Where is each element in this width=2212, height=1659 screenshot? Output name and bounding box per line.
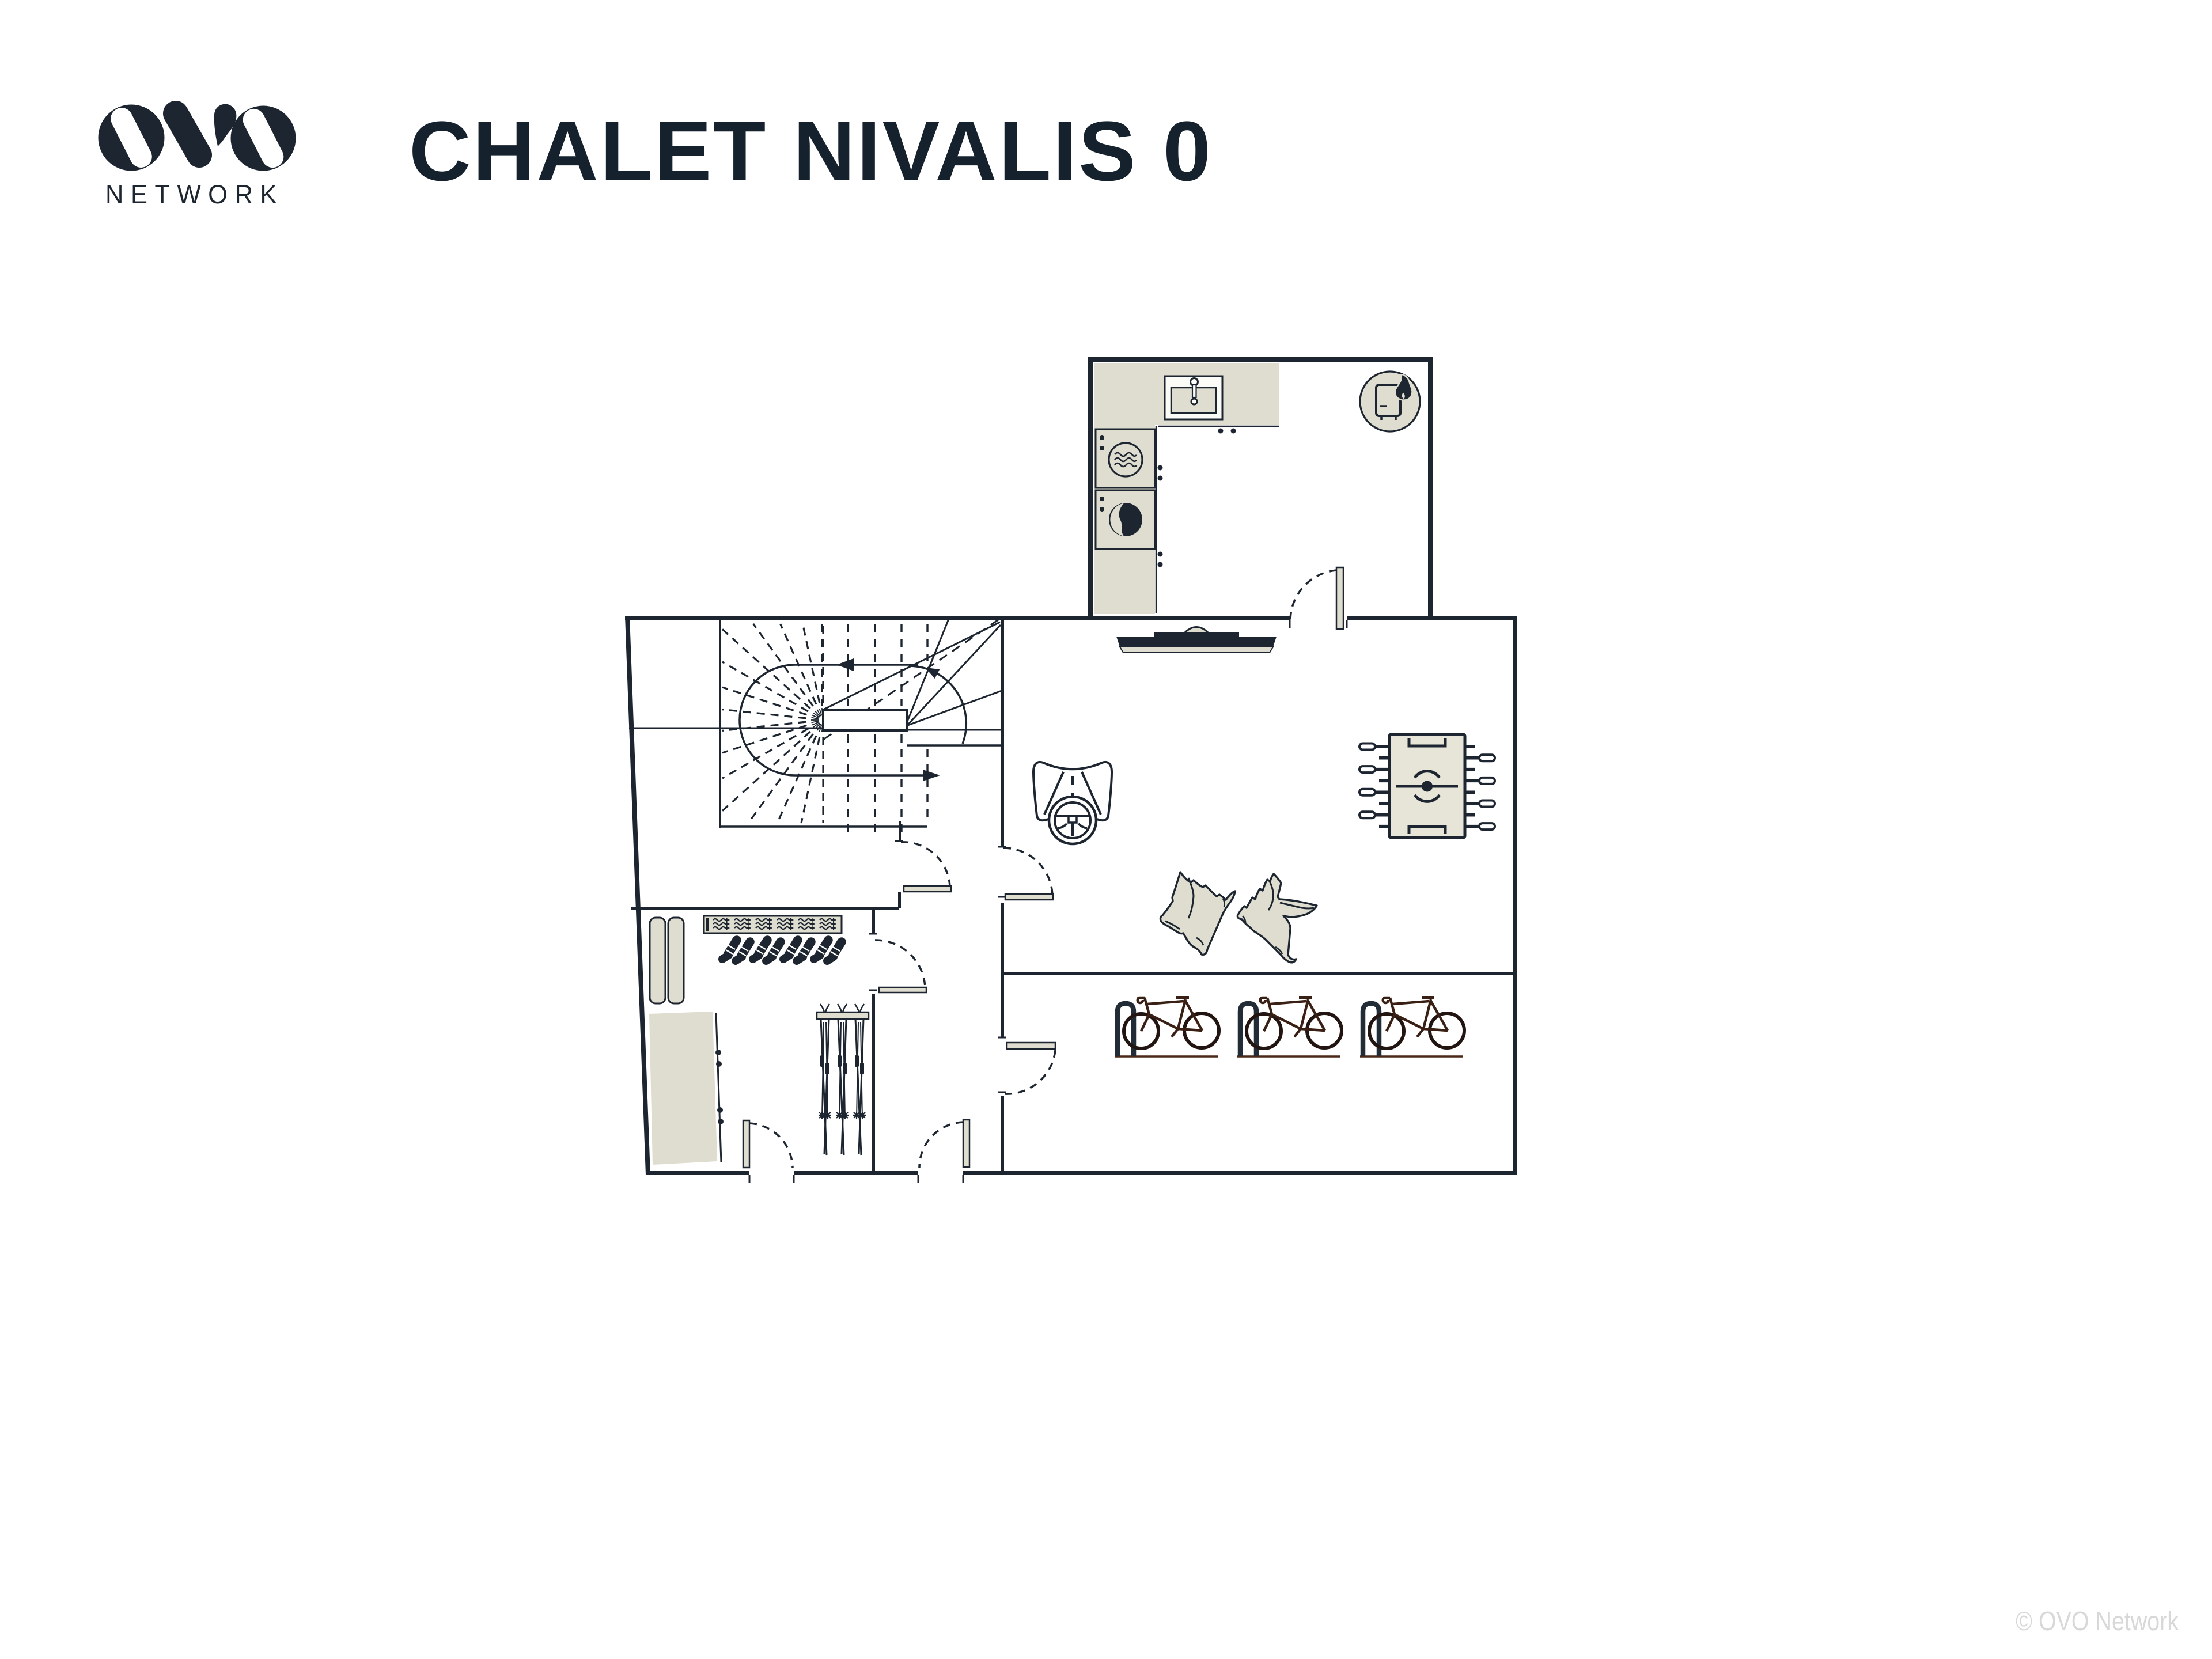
svg-text:© OVO Network: © OVO Network bbox=[2016, 1606, 2179, 1636]
svg-text:NETWORK: NETWORK bbox=[105, 180, 284, 209]
svg-text:CHALET NIVALIS 0: CHALET NIVALIS 0 bbox=[409, 104, 1213, 199]
